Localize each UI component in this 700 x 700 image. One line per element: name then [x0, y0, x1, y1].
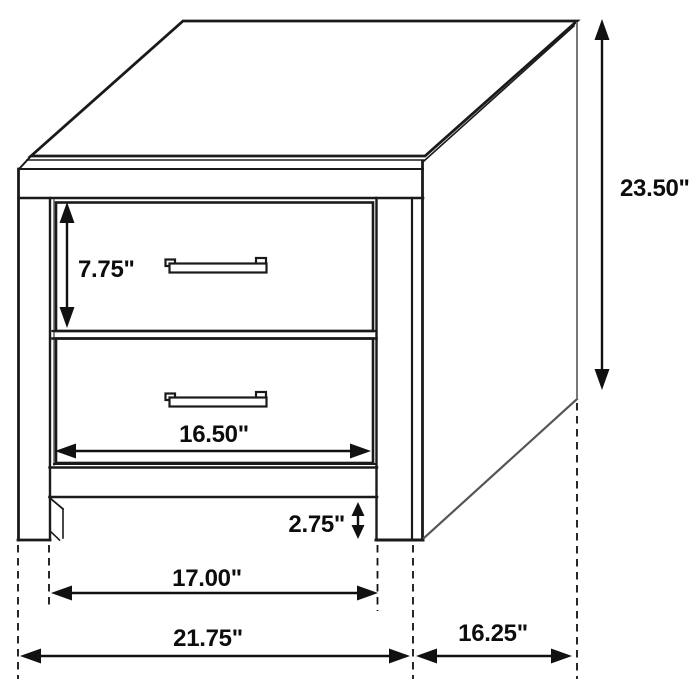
dim-overall-depth: 16.25" — [416, 620, 572, 664]
arrowhead-up — [352, 502, 365, 516]
dim-label-drawer-width: 16.50" — [179, 421, 249, 448]
dim-label-overall-height: 23.50" — [620, 175, 690, 202]
handle-bar — [170, 398, 267, 407]
arrowhead-left — [416, 649, 437, 664]
under-rail-diagonal — [50, 498, 63, 509]
arrowhead-up — [595, 19, 610, 40]
tabletop-left-bevel — [19, 156, 31, 169]
nightstand-dimension-diagram: 7.75" 23.50" 16.50" 2.75" 17 — [0, 0, 700, 700]
arrowhead-left — [20, 649, 41, 664]
dim-label-overall-width: 21.75" — [173, 625, 243, 652]
arrowhead-down — [595, 369, 610, 390]
tabletop-top-face — [31, 21, 577, 156]
dim-label-base-clearance: 2.75" — [288, 511, 345, 538]
arrowhead-right — [389, 649, 410, 664]
arrowhead-down — [352, 525, 365, 539]
dim-label-overall-depth: 16.25" — [458, 620, 528, 647]
arrowhead-right — [357, 586, 378, 601]
arrowhead-right — [551, 649, 572, 664]
handle-bar — [170, 264, 267, 273]
left-foot-bevel — [50, 531, 60, 540]
dim-label-between-legs: 17.00" — [172, 565, 242, 592]
arrowhead-left — [51, 586, 72, 601]
dim-label-top-drawer-height: 7.75" — [78, 256, 135, 283]
dim-overall-height: 23.50" — [595, 19, 690, 390]
dim-between-legs: 17.00" — [51, 565, 378, 601]
dim-overall-width: 21.75" — [20, 625, 410, 664]
dim-base-clearance: 2.75" — [288, 502, 364, 539]
diagram-canvas: 7.75" 23.50" 16.50" 2.75" 17 — [0, 0, 700, 700]
side-panel-bottom-edge — [424, 399, 577, 538]
